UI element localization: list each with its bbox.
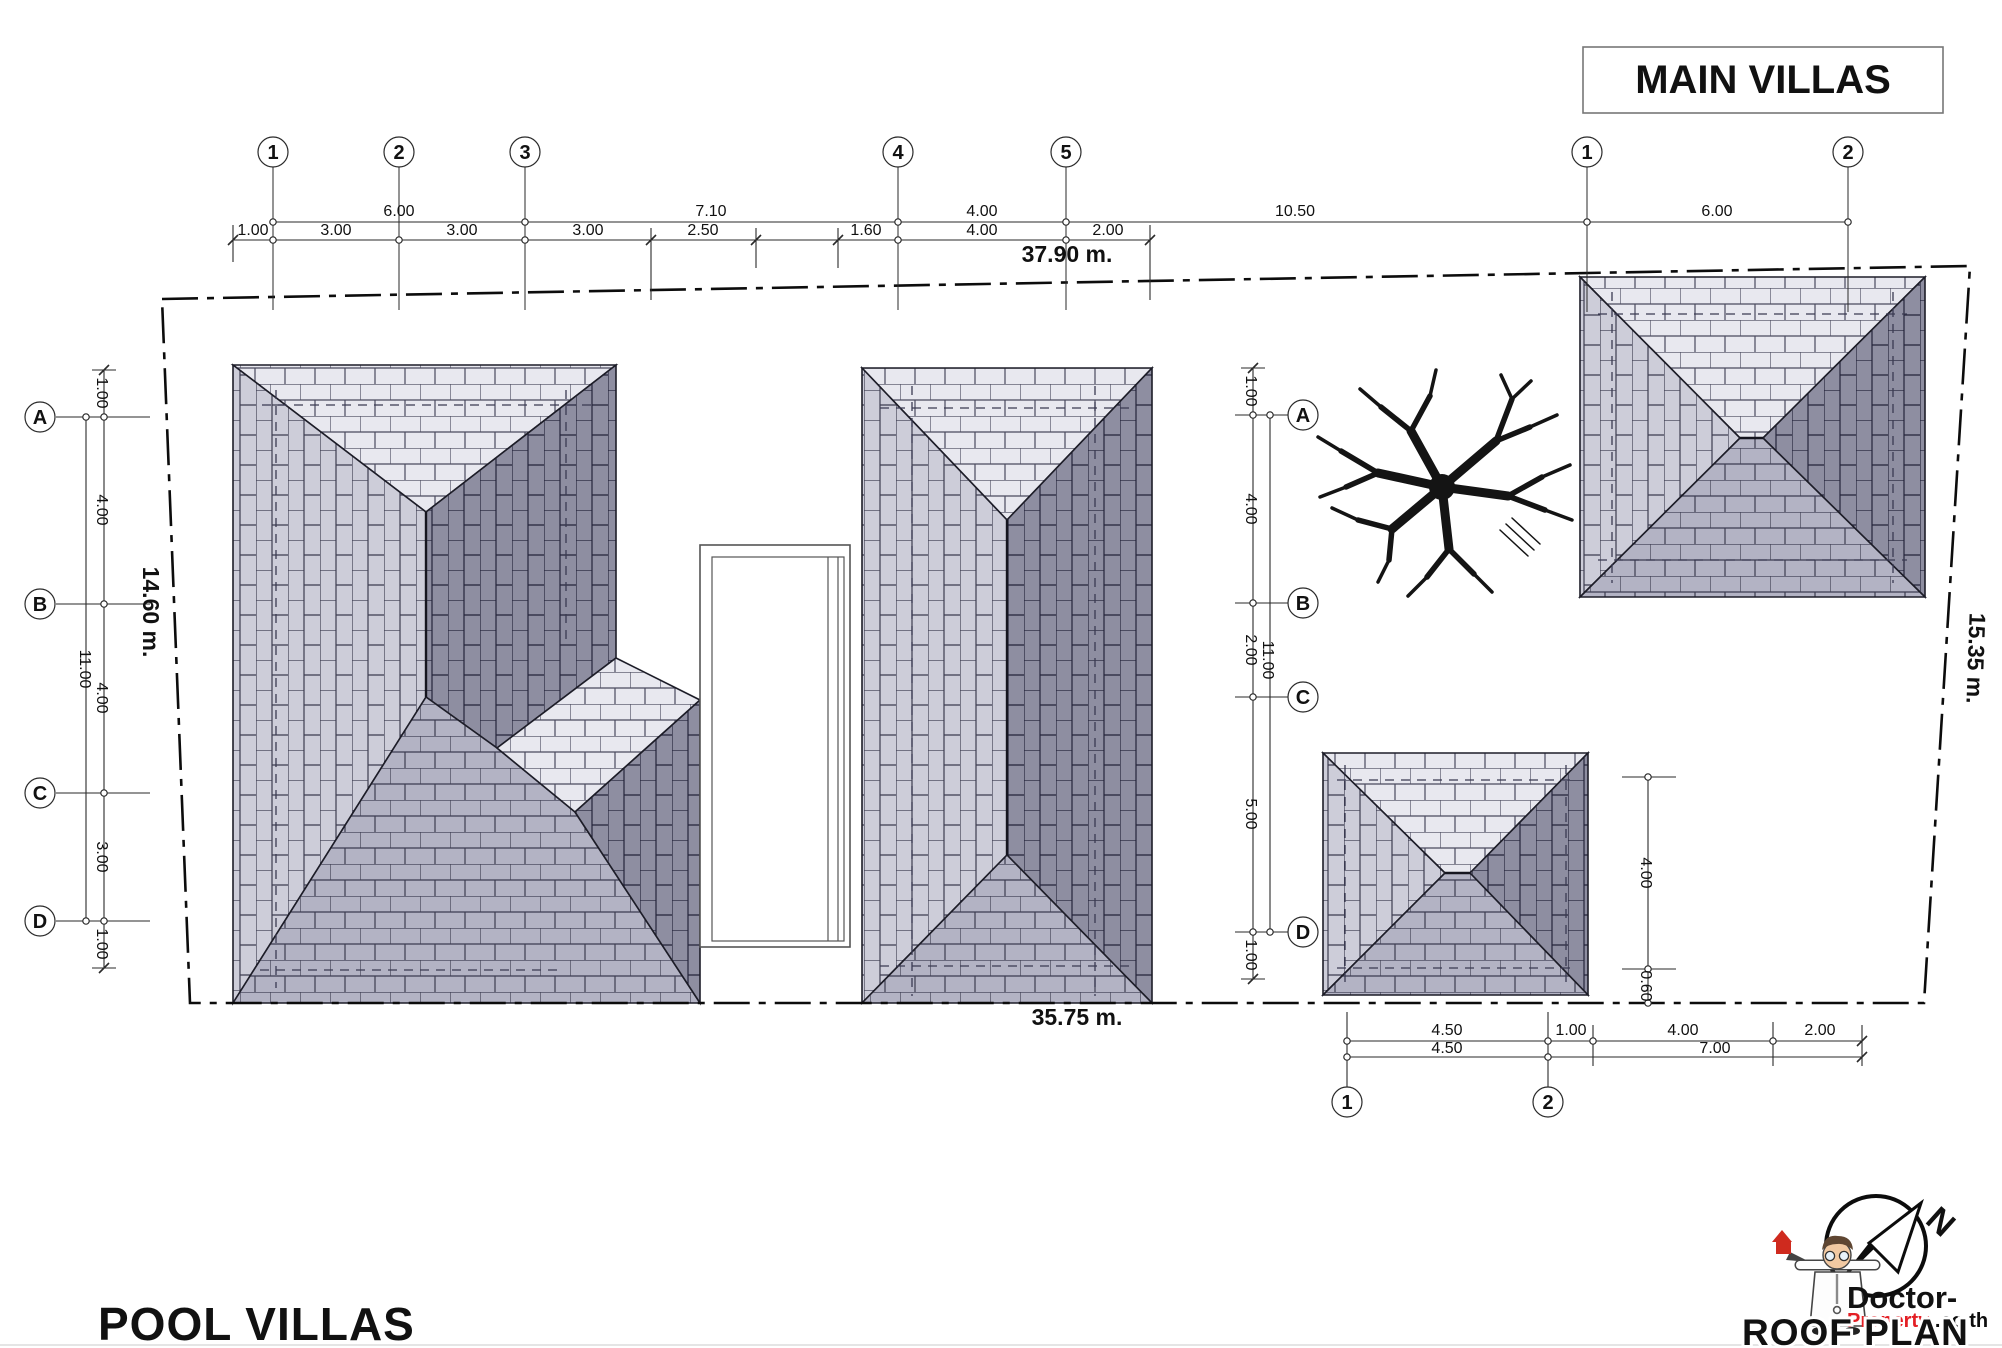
grid-bubble-label: 1 bbox=[1581, 142, 1592, 164]
dim-label: 4.00 bbox=[966, 203, 997, 220]
roof-main-villa-small bbox=[1323, 753, 1588, 995]
dim-label: 1.60 bbox=[850, 222, 881, 239]
dim-label: 1.00 bbox=[93, 928, 110, 959]
pool-inner bbox=[712, 557, 844, 941]
dim-label: 2.50 bbox=[687, 222, 718, 239]
span-label: 11.00 bbox=[76, 650, 93, 689]
roof-plan-drawing: 1 2 3 4 5 1 2 6.00 7.10 4.00 10.50 6.00 … bbox=[0, 0, 2002, 1348]
dim-label: 2.00 bbox=[1242, 634, 1259, 665]
grid-bubble-label: A bbox=[33, 407, 47, 429]
grid-bubble-label: C bbox=[33, 783, 47, 805]
dim-label: 2.00 bbox=[1092, 222, 1123, 239]
span-label: 11.00 bbox=[1259, 641, 1276, 680]
br-grid-bubbles: 1 2 bbox=[1332, 1087, 1563, 1117]
grid-bubble-label: C bbox=[1296, 687, 1310, 709]
dim-label: 4.00 bbox=[1637, 857, 1654, 888]
logo-block: N Doctor- Property .co.th ROOF PLAN bbox=[1742, 1196, 1988, 1348]
lower-dim-labels: 1.00 3.00 3.00 3.00 2.50 1.60 4.00 2.00 bbox=[237, 222, 1123, 239]
dim-label: 6.00 bbox=[1701, 203, 1732, 220]
grid-bubble-label: B bbox=[1296, 593, 1310, 615]
left-grid-column: A B C D 1.00 4.00 4.00 3.00 1.00 11.00 1… bbox=[25, 365, 164, 973]
grid-bubble-label: A bbox=[1296, 405, 1310, 427]
dim-label: 4.50 bbox=[1431, 1022, 1462, 1039]
vertical-dim: 4.00 0.60 bbox=[1622, 774, 1676, 1006]
dim-label: 10.50 bbox=[1275, 203, 1315, 220]
dim-label: 1.00 bbox=[93, 377, 110, 408]
middle-grid-bubbles: A B C D bbox=[1288, 400, 1318, 947]
roof-main-villa-large bbox=[1580, 277, 1925, 597]
left-grid-bubbles: A B C D bbox=[25, 402, 55, 936]
roof-middle-villa bbox=[862, 368, 1152, 1003]
dim-label: 4.50 bbox=[1431, 1040, 1462, 1057]
pool-villas-title: POOL VILLAS bbox=[98, 1298, 415, 1348]
dim-label: 0.60 bbox=[1637, 970, 1654, 1001]
grid-bubble-label: 2 bbox=[1542, 1092, 1553, 1114]
dimension-ticks bbox=[1344, 1036, 1867, 1062]
middle-dim-labels: 1.00 4.00 2.00 5.00 1.00 11.00 bbox=[1242, 375, 1276, 970]
upper-dim-labels: 6.00 7.10 4.00 10.50 6.00 bbox=[383, 203, 1732, 220]
dim-label: 4.00 bbox=[1667, 1022, 1698, 1039]
right-height-label: 15.35 m. bbox=[1961, 612, 1990, 704]
house-icon bbox=[1776, 1242, 1791, 1254]
grid-bubble-label: 2 bbox=[1842, 142, 1853, 164]
grid-bubble-label: D bbox=[1296, 922, 1310, 944]
left-height-label: 14.60 m. bbox=[138, 567, 164, 658]
dim-label: 3.00 bbox=[320, 222, 351, 239]
dim-label: 4.00 bbox=[966, 222, 997, 239]
dim-label: 3.00 bbox=[446, 222, 477, 239]
dim-label: 5.00 bbox=[1242, 798, 1259, 829]
brand-text: Doctor- Property .co.th ROOF PLAN bbox=[1742, 1280, 1988, 1348]
left-dim-labels: 1.00 4.00 4.00 3.00 1.00 11.00 bbox=[76, 377, 110, 959]
roof-left-villa bbox=[233, 365, 700, 1003]
grid-bubble-label: D bbox=[33, 911, 47, 933]
dim-label: 4.00 bbox=[93, 494, 110, 525]
dim-label: 4.00 bbox=[93, 682, 110, 713]
grid-bubble-label: 1 bbox=[267, 142, 278, 164]
dimension-lines bbox=[56, 370, 150, 968]
dim-label: 4.00 bbox=[1242, 493, 1259, 524]
grid-bubble-label: 2 bbox=[393, 142, 404, 164]
total-width-label: 37.90 m. bbox=[1022, 241, 1113, 267]
dimension-lines bbox=[1347, 1012, 1862, 1087]
dim-label: 3.00 bbox=[93, 841, 110, 872]
dim-label: 6.00 bbox=[383, 203, 414, 220]
top-grid-bubbles: 1 2 3 4 5 1 2 bbox=[258, 137, 1863, 167]
tree-icon bbox=[1318, 370, 1572, 596]
bottom-width-label: 35.75 m. bbox=[1032, 1004, 1123, 1030]
dim-label: 7.00 bbox=[1699, 1040, 1730, 1057]
grid-bubble-label: 5 bbox=[1060, 142, 1071, 164]
dim-label: 3.00 bbox=[572, 222, 603, 239]
grid-bubble-label: 3 bbox=[519, 142, 530, 164]
dim-label: 7.10 bbox=[695, 203, 726, 220]
grid-bubble-label: B bbox=[33, 594, 47, 616]
dim-label: 1.00 bbox=[1555, 1022, 1586, 1039]
dim-label: 2.00 bbox=[1804, 1022, 1835, 1039]
dim-label: 1.00 bbox=[237, 222, 268, 239]
grid-bubble-label: 4 bbox=[892, 142, 904, 164]
grid-bubble-label: 1 bbox=[1341, 1092, 1352, 1114]
main-villas-title: MAIN VILLAS bbox=[1635, 58, 1891, 102]
pool bbox=[700, 545, 850, 947]
roof-plan-title: ROOF PLAN bbox=[1742, 1312, 1969, 1348]
dim-label: 1.00 bbox=[1242, 375, 1259, 406]
main-villas-title-box: MAIN VILLAS bbox=[1583, 47, 1943, 113]
dim-label: 1.00 bbox=[1242, 939, 1259, 970]
middle-grid-column: A B C D 1.00 4.00 2.00 5.00 1.00 11.00 bbox=[1235, 363, 1318, 984]
